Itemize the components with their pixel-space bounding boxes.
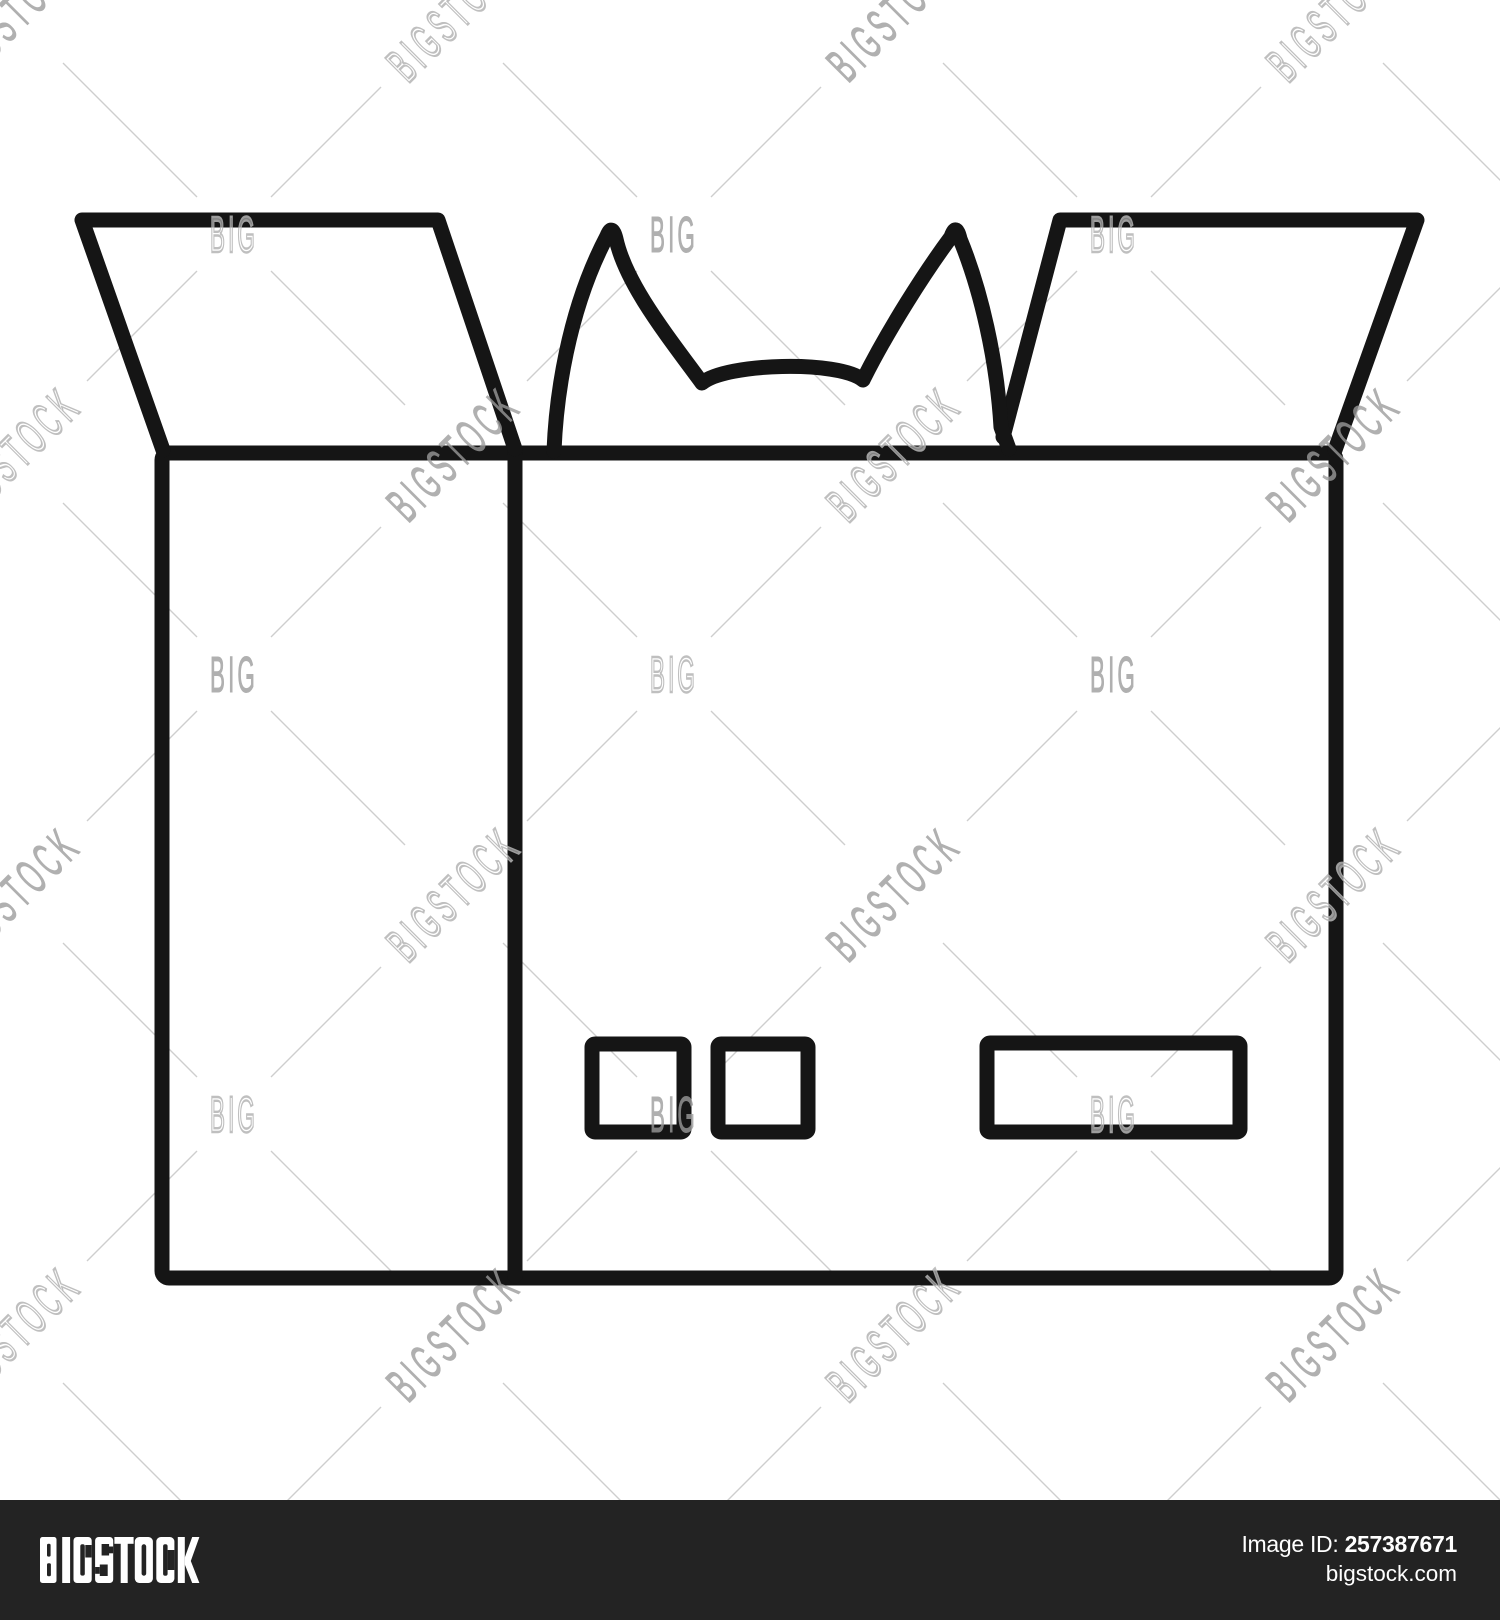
svg-text:bigstock.com: bigstock.com (1326, 1561, 1457, 1586)
svg-text:BIG: BIG (210, 647, 258, 704)
svg-text:BIG: BIG (650, 207, 698, 264)
svg-text:BIG: BIG (1090, 207, 1138, 264)
svg-text:BIG: BIG (210, 1087, 258, 1144)
svg-text:BIG: BIG (1090, 1087, 1138, 1144)
svg-text:BIG: BIG (210, 207, 258, 264)
svg-text:BIG: BIG (650, 1087, 698, 1144)
svg-text:BIG: BIG (650, 647, 698, 704)
svg-text:BIG: BIG (1090, 647, 1138, 704)
svg-text:Image ID: 257387671: Image ID: 257387671 (1241, 1531, 1457, 1557)
